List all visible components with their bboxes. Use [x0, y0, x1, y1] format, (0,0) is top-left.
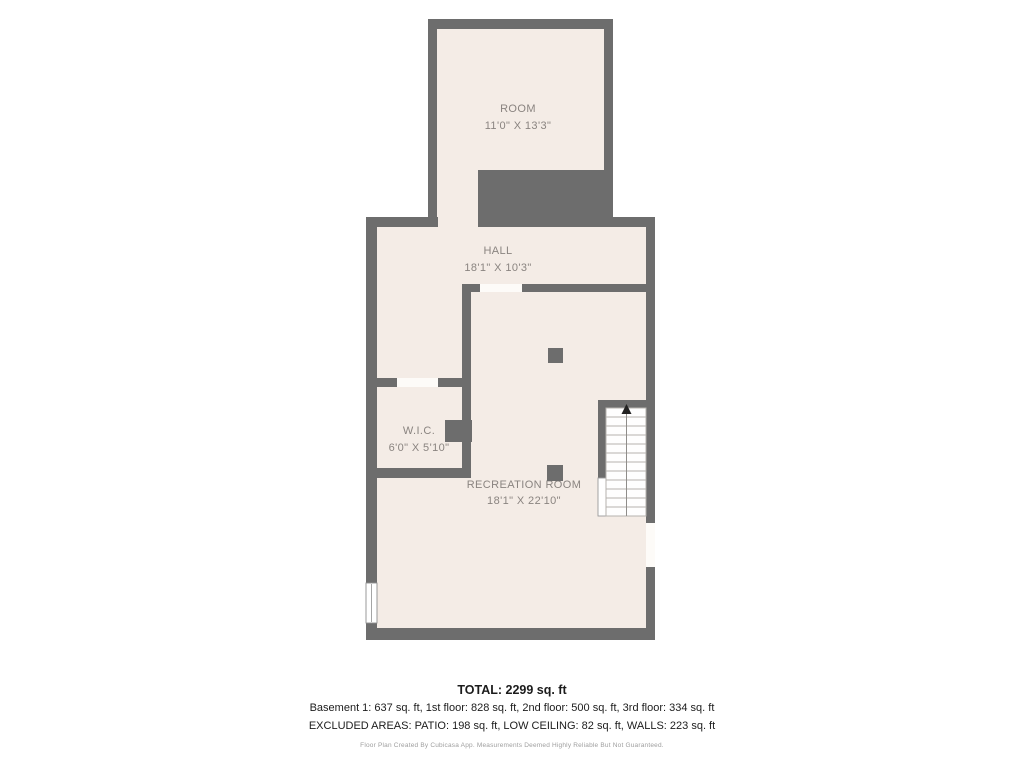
hall-bottom-wall-b	[522, 284, 646, 292]
hall-bottom-wall-a	[462, 284, 480, 292]
void-block	[478, 170, 613, 227]
hall-dims: 18'1" X 10'3"	[464, 262, 531, 274]
room-dims: 11'0" X 13'3"	[485, 120, 552, 132]
total-area-text: TOTAL: 2299 sq. ft	[0, 681, 1024, 699]
outer-right-wall	[646, 217, 655, 640]
window-symbol	[366, 583, 377, 623]
disclaimer-text: Floor Plan Created By Cubicasa App. Meas…	[0, 742, 1024, 749]
rec-room-floor-left	[377, 478, 474, 628]
passage-floor	[437, 170, 478, 227]
floor-areas-text: Basement 1: 637 sq. ft, 1st floor: 828 s…	[0, 699, 1024, 717]
room-top-wall	[428, 19, 613, 29]
rec-room-column-1	[548, 348, 563, 363]
outer-left-wall	[366, 217, 377, 640]
wic-top-wall-a	[366, 378, 397, 387]
area-summary: TOTAL: 2299 sq. ft Basement 1: 637 sq. f…	[0, 681, 1024, 735]
right-wall-opening	[646, 523, 655, 567]
wic-dims: 6'0" X 5'10"	[389, 442, 450, 454]
wic-bottom-wall	[366, 468, 471, 478]
rec-room-column-2	[547, 465, 563, 481]
room-label: ROOM	[500, 103, 536, 115]
wic-label: W.I.C.	[403, 425, 435, 437]
wic-column	[445, 420, 472, 442]
outer-bottom-wall	[366, 628, 655, 640]
room-floor	[437, 29, 604, 170]
hall-label: HALL	[483, 245, 512, 257]
rec-room-label: RECREATION ROOM	[467, 479, 582, 491]
inner-vertical-wall	[462, 284, 471, 478]
floor-plan-diagram: ROOM 11'0" X 13'3" HALL 18'1" X 10'3" W.…	[0, 0, 1024, 660]
hall-floor-left-ext	[377, 225, 462, 378]
wic-door-opening	[397, 378, 438, 387]
hall-door-opening	[480, 284, 522, 292]
excluded-areas-text: EXCLUDED AREAS: PATIO: 198 sq. ft, LOW C…	[0, 717, 1024, 735]
room-left-wall	[428, 19, 437, 227]
rec-room-dims: 18'1" X 22'10"	[487, 495, 561, 507]
stair-left-wall	[598, 400, 606, 478]
floorplan-page: ROOM 11'0" X 13'3" HALL 18'1" X 10'3" W.…	[0, 0, 1024, 768]
stair-door-opening	[598, 478, 606, 516]
staircase	[606, 404, 646, 516]
wic-top-wall-b	[438, 378, 462, 387]
